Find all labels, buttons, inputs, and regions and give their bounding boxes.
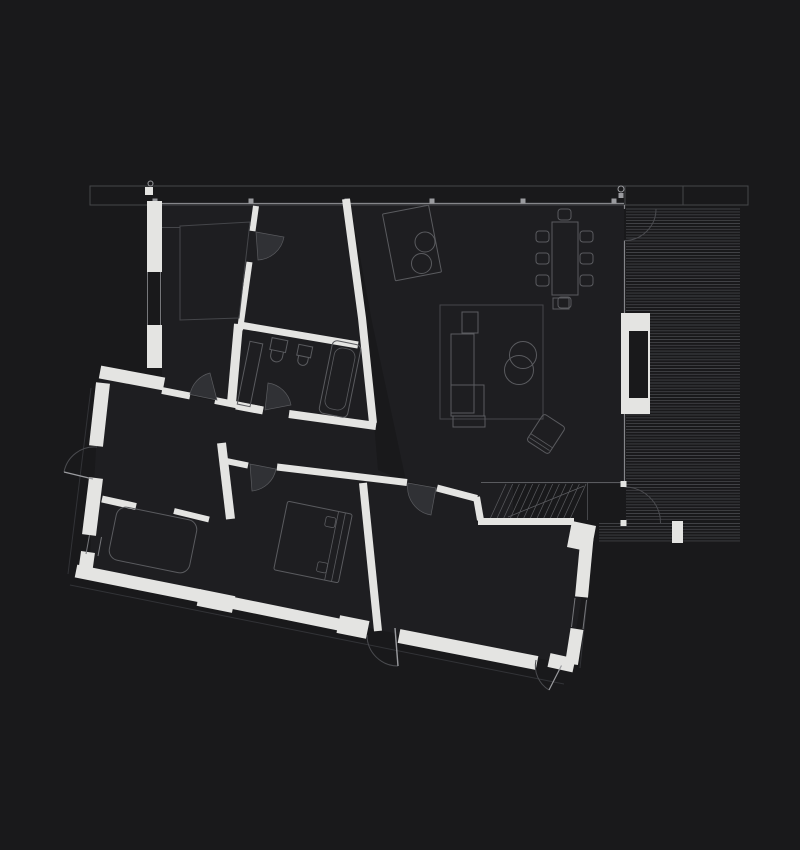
door-jamb-deck-b	[621, 520, 627, 526]
fireplace	[621, 313, 650, 414]
glazing-mullion	[430, 199, 435, 204]
datum-marker-left	[145, 187, 153, 195]
wall-wing-east-1	[572, 629, 578, 664]
wall-wing-west-2	[89, 478, 96, 535]
fireplace-opening	[629, 331, 648, 398]
wall-wing-west-1	[96, 383, 103, 446]
glazing-mullion	[521, 199, 526, 204]
floor-plan-drawing	[0, 0, 800, 850]
glazing-mullion	[249, 199, 254, 204]
wall-step-link	[477, 497, 481, 520]
deck-post	[672, 521, 683, 543]
datum-marker-right	[619, 193, 624, 198]
door-jamb-deck-a	[621, 481, 627, 487]
wall-corner-block-ne	[567, 521, 596, 552]
wall-entry-east-a	[253, 206, 257, 231]
glazing-mullion	[612, 199, 617, 204]
floor-plan-canvas	[0, 0, 800, 850]
